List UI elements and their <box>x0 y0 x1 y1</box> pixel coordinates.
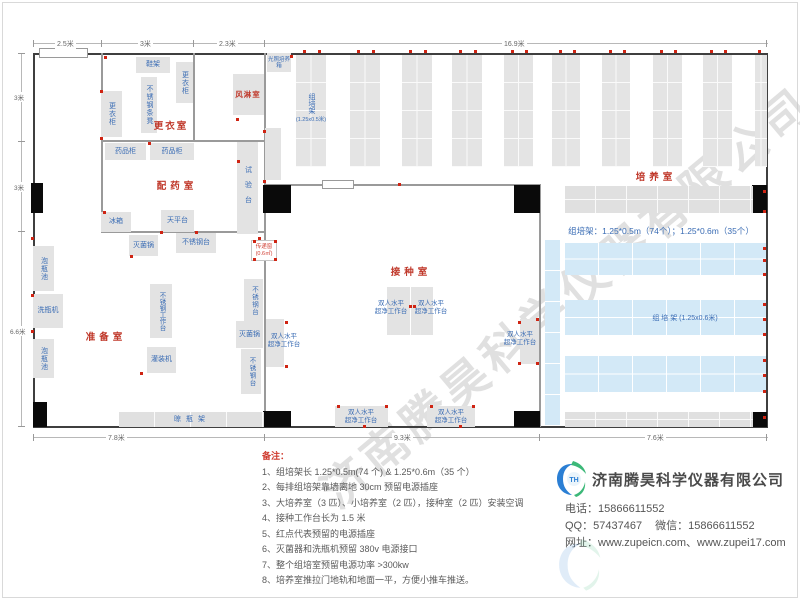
balance-table: 天平台 <box>161 210 194 232</box>
dim-left-3: 6.6米 <box>8 326 28 336</box>
column <box>752 412 767 427</box>
sterilizer: 灭菌锅 <box>236 321 263 348</box>
power-outlet-dot <box>758 50 761 53</box>
column <box>514 185 540 213</box>
power-outlet-dot <box>518 321 521 324</box>
power-outlet-dot <box>31 294 34 297</box>
power-outlet-dot <box>290 55 293 58</box>
power-outlet-dot <box>413 305 416 308</box>
note-item: 5、红点代表预留的电源插座 <box>262 527 542 543</box>
power-outlet-dot <box>253 240 256 243</box>
stainless-table: 不锈钢台 <box>244 279 263 323</box>
clean-bench-label: 双人水平 超净工作台 <box>432 409 470 424</box>
dim-bottom-2: 9.3米 <box>392 433 413 443</box>
bottle-washer: 洗瓶机 <box>33 294 63 328</box>
power-outlet-dot <box>337 405 340 408</box>
power-outlet-dot <box>763 273 766 276</box>
power-outlet-dot <box>623 50 626 53</box>
power-outlet-dot <box>763 359 766 362</box>
power-outlet-dot <box>459 50 462 53</box>
power-outlet-dot <box>372 50 375 53</box>
soak-pool: 泡瓶池 <box>33 339 54 378</box>
power-outlet-dot <box>536 362 539 365</box>
partition <box>101 53 103 232</box>
tick <box>264 40 265 47</box>
dim-top-4: 16.9米 <box>502 39 527 49</box>
power-outlet-dot <box>474 50 477 53</box>
culture-rack-vertical <box>545 240 560 426</box>
power-outlet-dot <box>459 425 462 428</box>
power-outlet-dot <box>763 247 766 250</box>
power-outlet-dot <box>258 237 261 240</box>
tick <box>33 434 34 441</box>
power-outlet-dot <box>763 333 766 336</box>
partition <box>539 184 541 427</box>
power-outlet-dot <box>263 180 266 183</box>
locker: 更衣柜 <box>176 62 193 103</box>
power-outlet-dot <box>263 130 266 133</box>
power-outlet-dot <box>160 231 163 234</box>
room-label-dispensing: 配药室 <box>145 178 209 192</box>
culture-rack-big-label: 组 培 架 (1.25x0.6米) <box>640 315 730 323</box>
power-outlet-dot <box>285 321 288 324</box>
notes-title: 备注： <box>262 449 542 465</box>
power-outlet-dot <box>285 365 288 368</box>
power-outlet-dot <box>104 56 107 59</box>
power-outlet-dot <box>430 405 433 408</box>
tick <box>18 426 25 427</box>
culture-rack-column <box>602 55 630 167</box>
power-outlet-dot <box>130 255 133 258</box>
tick <box>33 40 34 47</box>
tick <box>264 434 265 441</box>
phone-line: 电话：15866611552 <box>565 500 664 516</box>
room-label-air-shower: 风淋室 <box>228 89 268 100</box>
power-outlet-dot <box>559 50 562 53</box>
culture-rack-blue <box>565 356 766 392</box>
dim-bottom-3: 7.6米 <box>645 433 666 443</box>
power-outlet-dot <box>236 118 239 121</box>
incubator-shelf <box>265 128 281 180</box>
power-outlet-dot <box>573 50 576 53</box>
note-item: 6、灭菌器和洗瓶机预留 380v 电源接口 <box>262 542 542 558</box>
culture-rack-column <box>755 55 767 167</box>
rack-summary: 组培架：1.25*0.5m（74个）；1.25*0.6m（35个） <box>555 225 767 237</box>
culture-rack-column <box>452 55 482 167</box>
power-outlet-dot <box>363 425 366 428</box>
column <box>31 183 43 213</box>
note-item: 8、培养室推拉门地轨和地面一平，方便小推车推送。 <box>262 573 542 589</box>
power-outlet-dot <box>409 305 412 308</box>
clean-bench-label: 双人水平 超净工作台 <box>412 300 450 315</box>
pass-window-area: (0.6㎡) <box>252 251 276 258</box>
filling-machine: 灌装机 <box>147 347 176 373</box>
power-outlet-dot <box>398 183 401 186</box>
inoculation-room-door <box>322 180 354 189</box>
tick <box>766 434 767 441</box>
dim-line-left <box>21 53 22 427</box>
company-name: 济南腾昊科学仪器有限公司 <box>592 469 784 490</box>
bottle-drying-rack-label: 晾瓶架 <box>160 416 224 424</box>
power-outlet-dot <box>140 372 143 375</box>
soak-pool: 泡瓶池 <box>33 246 54 291</box>
power-outlet-dot <box>724 50 727 53</box>
notes-block: 备注： 1、组培架长 1.25*0.5m(74 个) & 1.25*0.6m（3… <box>262 449 542 589</box>
culture-bench <box>565 186 753 213</box>
room-label-inoculation: 接种室 <box>383 264 439 278</box>
power-outlet-dot <box>609 50 612 53</box>
power-outlet-dot <box>660 50 663 53</box>
note-item: 2、每排组培架靠墙离地 30cm 预留电源插座 <box>262 480 542 496</box>
room-label-prep: 准备室 <box>78 329 134 343</box>
note-item: 1、组培架长 1.25*0.5m(74 个) & 1.25*0.6m（35 个） <box>262 465 542 481</box>
locker: 更衣柜 <box>101 91 122 137</box>
tick <box>101 40 102 47</box>
websites: www.zupeicn.com、www.zupei17.com <box>598 537 786 549</box>
dim-top-3: 2.3米 <box>217 39 238 49</box>
power-outlet-dot <box>100 90 103 93</box>
tick <box>193 40 194 47</box>
power-outlet-dot <box>763 374 766 377</box>
power-outlet-dot <box>710 50 713 53</box>
medicine-cabinet: 药品柜 <box>105 143 146 160</box>
logo-watermark <box>552 538 606 592</box>
power-outlet-dot <box>472 405 475 408</box>
qq-number: 57437467 <box>593 520 642 532</box>
dim-bottom-1: 7.8米 <box>106 433 127 443</box>
column <box>33 402 47 427</box>
culture-bench <box>565 412 753 427</box>
tick <box>766 40 767 47</box>
tick <box>18 141 25 142</box>
column <box>514 411 540 427</box>
logo-monogram: TH <box>569 477 578 484</box>
power-outlet-dot <box>424 50 427 53</box>
test-bench: 试验台 <box>237 142 258 234</box>
culture-rack-label: 组培架 <box>301 88 315 118</box>
partition <box>264 184 541 186</box>
light-incubator: 光照培养箱 <box>267 53 291 72</box>
power-outlet-dot <box>274 258 277 261</box>
power-outlet-dot <box>31 330 34 333</box>
power-outlet-dot <box>103 211 106 214</box>
culture-rack-column <box>552 55 580 167</box>
dim-top-1: 2.5米 <box>55 39 76 49</box>
power-outlet-dot <box>409 50 412 53</box>
culture-rack-size: (1.25x0.5米) <box>293 117 329 125</box>
clean-bench-label: 双人水平 超净工作台 <box>372 300 410 315</box>
culture-rack-column <box>402 55 432 167</box>
tick <box>18 53 25 54</box>
dim-left-1: 3米 <box>12 92 26 102</box>
culture-rack-column <box>653 55 682 167</box>
sterilizer: 灭菌锅 <box>129 235 158 256</box>
power-outlet-dot <box>763 303 766 306</box>
wechat-number: 15866611552 <box>688 520 754 532</box>
power-outlet-dot <box>763 259 766 262</box>
note-item: 4、接种工作台长为 1.5 米 <box>262 511 542 527</box>
room-label-culture: 培养室 <box>628 169 684 183</box>
shoe-rack: 鞋架 <box>136 57 170 73</box>
stainless-workbench: 不锈钢工作台 <box>150 284 172 338</box>
clean-bench-label: 双人水平 超净工作台 <box>501 331 539 346</box>
culture-rack-column <box>350 55 380 167</box>
culture-rack-blue <box>565 243 766 275</box>
power-outlet-dot <box>763 190 766 193</box>
power-outlet-dot <box>274 240 277 243</box>
note-item: 3、大培养室（3 匹）、小培养室（2 匹），接种室（2 匹）安装空调 <box>262 496 542 512</box>
power-outlet-dot <box>536 318 539 321</box>
clean-bench-label: 双人水平 超净工作台 <box>342 409 380 424</box>
power-outlet-dot <box>357 50 360 53</box>
stainless-table: 不锈钢台 <box>241 349 261 394</box>
power-outlet-dot <box>195 231 198 234</box>
power-outlet-dot <box>763 390 766 393</box>
dim-top-2: 3米 <box>138 39 153 49</box>
stainless-table: 不锈钢台 <box>176 233 216 253</box>
fridge: 冰箱 <box>101 212 131 232</box>
dim-left-2: 3米 <box>12 182 26 192</box>
note-item: 7、整个组培室预留电源功率 >300kw <box>262 558 542 574</box>
qq-wechat-line: QQ：57437467 微信：15866611552 <box>565 517 755 533</box>
tick <box>18 231 25 232</box>
culture-rack-column <box>504 55 533 167</box>
power-outlet-dot <box>763 318 766 321</box>
power-outlet-dot <box>303 50 306 53</box>
phone-number: 15866611552 <box>598 503 664 515</box>
power-outlet-dot <box>253 258 256 261</box>
power-outlet-dot <box>763 210 766 213</box>
power-outlet-dot <box>318 50 321 53</box>
power-outlet-dot <box>31 237 34 240</box>
power-outlet-dot <box>100 137 103 140</box>
power-outlet-dot <box>148 142 151 145</box>
column <box>263 185 291 213</box>
power-outlet-dot <box>674 50 677 53</box>
power-outlet-dot <box>763 416 766 419</box>
tick <box>539 434 540 441</box>
medicine-cabinet: 药品柜 <box>150 143 194 160</box>
culture-rack-column <box>703 55 732 167</box>
power-outlet-dot <box>525 50 528 53</box>
power-outlet-dot <box>385 405 388 408</box>
entrance-door <box>39 48 88 58</box>
clean-bench-label: 双人水平 超净工作台 <box>263 333 305 348</box>
power-outlet-dot <box>518 362 521 365</box>
room-label-changing: 更衣室 <box>148 118 194 132</box>
power-outlet-dot <box>511 50 514 53</box>
company-logo: TH <box>554 460 588 498</box>
power-outlet-dot <box>237 160 240 163</box>
column <box>263 411 291 427</box>
